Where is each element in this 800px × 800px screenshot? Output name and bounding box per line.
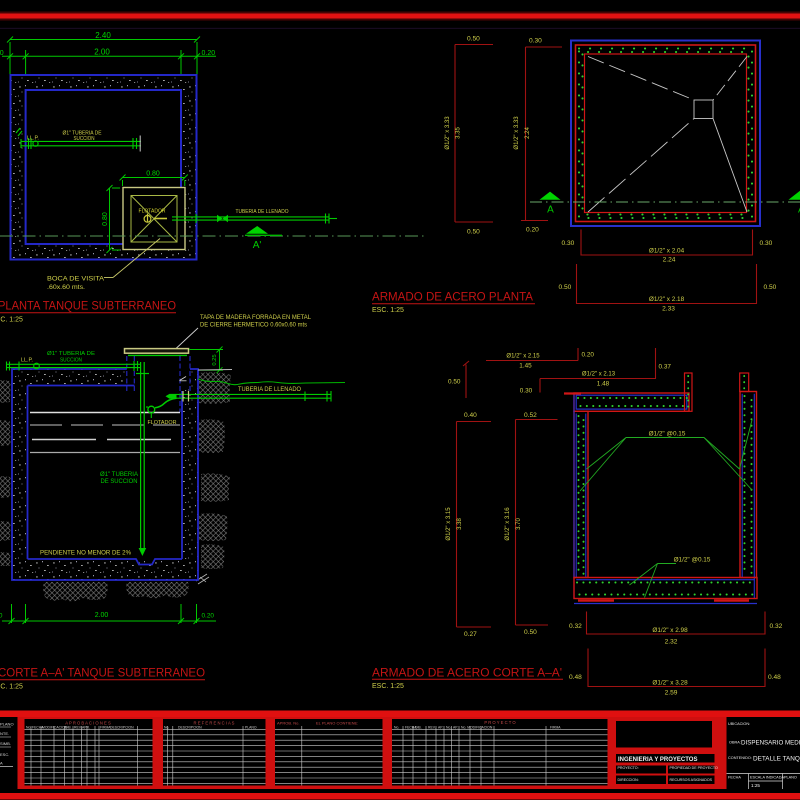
svg-text:OBRA:: OBRA: (729, 741, 741, 745)
svg-text:2.32: 2.32 (665, 639, 678, 646)
svg-text:No.: No. (26, 726, 31, 730)
svg-text:DIRECCION:: DIRECCION: (618, 778, 639, 782)
svg-text:No.: No. (394, 726, 399, 730)
svg-text:0.50: 0.50 (524, 629, 537, 636)
svg-text:TUBERIA DE LLENADO: TUBERIA DE LLENADO (238, 387, 301, 393)
svg-text:ARMADO DE ACERO CORTE A–A': ARMADO DE ACERO CORTE A–A' (372, 666, 562, 680)
svg-text:0.30: 0.30 (529, 38, 542, 45)
svg-text:REV.: REV. (74, 726, 82, 730)
svg-text:CONTENIDO:: CONTENIDO: (728, 756, 752, 760)
svg-text:Ø1/2" x 3.33: Ø1/2" x 3.33 (514, 116, 520, 150)
svg-text:0.27: 0.27 (464, 631, 477, 638)
svg-text:AP.: AP. (438, 726, 443, 730)
svg-text:AP.: AP. (453, 726, 458, 730)
svg-text:1.45: 1.45 (519, 363, 532, 370)
svg-text:0.50: 0.50 (448, 379, 461, 386)
svg-text:3.38: 3.38 (457, 518, 463, 530)
svg-text:FECHA: FECHA (728, 776, 741, 780)
svg-text:ESC. 1:25: ESC. 1:25 (372, 307, 404, 314)
svg-text:0.40: 0.40 (464, 412, 477, 419)
svg-text:0.52: 0.52 (524, 412, 537, 419)
svg-text:DIB.: DIB. (415, 726, 422, 730)
svg-text:ESC. 1:25: ESC. 1:25 (0, 317, 23, 324)
svg-text:Ø1/2" x 2.98: Ø1/2" x 2.98 (652, 627, 688, 634)
svg-text:0.20: 0.20 (0, 612, 3, 619)
svg-text:Ø1/2" x 3.33: Ø1/2" x 3.33 (445, 116, 451, 150)
svg-text:A: A (0, 761, 3, 766)
svg-text:0.20: 0.20 (526, 227, 539, 234)
svg-text:0.25: 0.25 (212, 354, 218, 365)
svg-text:NTE.: NTE. (0, 731, 9, 736)
svg-text:PLANO: PLANO (0, 722, 14, 727)
svg-text:DETALLE TANQUE: DETALLE TANQUE (753, 756, 800, 763)
svg-text:Ø1/2" x 3.28: Ø1/2" x 3.28 (652, 680, 688, 687)
svg-text:3.35: 3.35 (456, 127, 462, 139)
svg-text:0.48: 0.48 (569, 674, 582, 681)
svg-text:0.20: 0.20 (0, 50, 4, 57)
svg-text:Ø1/2" @0.15: Ø1/2" @0.15 (649, 431, 686, 438)
svg-text:No.: No. (446, 726, 451, 730)
svg-text:RECURSOS ASIGNADOS: RECURSOS ASIGNADOS (670, 778, 713, 782)
svg-text:DESCRIPCION: DESCRIPCION (110, 726, 134, 730)
svg-text:ESCALA INDICADA: ESCALA INDICADA (750, 776, 784, 780)
svg-text:APR.: APR. (82, 726, 90, 730)
svg-text:APROB. No.: APROB. No. (277, 721, 299, 726)
svg-text:Ø1" TUBERIA DE: Ø1" TUBERIA DE (47, 351, 95, 357)
svg-text:LL.P.: LL.P. (21, 358, 33, 364)
svg-text:UBICACION:: UBICACION: (728, 722, 750, 726)
svg-text:2.33: 2.33 (662, 306, 675, 313)
svg-text:DIB.: DIB. (65, 726, 72, 730)
svg-text:Ø1/2" x 2.15: Ø1/2" x 2.15 (506, 354, 540, 360)
svg-text:0.50: 0.50 (467, 229, 480, 236)
svg-text:DESCRIPCION: DESCRIPCION (178, 726, 202, 730)
svg-text:2.24: 2.24 (525, 127, 531, 139)
svg-text:0.30: 0.30 (562, 240, 575, 247)
svg-text:0.20: 0.20 (582, 352, 595, 359)
svg-text:FLOTADOR: FLOTADOR (139, 209, 166, 215)
svg-text:INGENIERIA Y PROYECTOS: INGENIERIA Y PROYECTOS (618, 757, 697, 763)
svg-text:PLANO: PLANO (784, 776, 797, 780)
svg-text:0.50: 0.50 (559, 284, 572, 291)
svg-text:BOCA DE VISITA: BOCA DE VISITA (47, 276, 105, 283)
svg-text:CORTE A–A' TANQUE SUBTERRAN: CORTE A–A' TANQUE SUBTERRANEO (0, 666, 205, 680)
svg-text:P R O Y E C T O: P R O Y E C T O (484, 720, 516, 725)
svg-text:LL.P.: LL.P. (27, 135, 39, 141)
svg-text:FIRMA: FIRMA (550, 726, 561, 730)
svg-text:SUCCION: SUCCION (60, 358, 82, 364)
svg-text:A': A' (253, 240, 262, 251)
svg-text:Ø1/2" @0.15: Ø1/2" @0.15 (674, 557, 711, 564)
svg-text:0.48: 0.48 (768, 674, 781, 681)
svg-text:Ø1/2" x 2.18: Ø1/2" x 2.18 (649, 296, 685, 303)
svg-text:DE SUCCION: DE SUCCION (101, 478, 138, 485)
svg-text:0.20: 0.20 (202, 50, 216, 57)
svg-text:2.00: 2.00 (94, 48, 110, 57)
svg-text:ESC. 1:25: ESC. 1:25 (372, 683, 404, 690)
svg-text:3.70: 3.70 (516, 518, 522, 530)
svg-text:0.50: 0.50 (467, 36, 480, 43)
svg-text:0.30: 0.30 (520, 388, 533, 395)
svg-text:FLOTADOR: FLOTADOR (148, 420, 177, 426)
svg-text:0.80: 0.80 (102, 212, 109, 226)
svg-text:ARMADO DE ACERO PLANTA: ARMADO DE ACERO PLANTA (372, 290, 533, 304)
svg-text:PLANTA TANQUE SUBTERRANEO: PLANTA TANQUE SUBTERRANEO (0, 299, 176, 313)
svg-text:PROPIEDAD DE PROYECTO: PROPIEDAD DE PROYECTO (670, 766, 718, 770)
svg-text:DISPENSARIO MEDICO: DISPENSARIO MEDICO (741, 740, 800, 747)
svg-text:TUBERIA DE LLENADO: TUBERIA DE LLENADO (236, 209, 290, 215)
svg-text:REV.: REV. (428, 726, 436, 730)
svg-text:1:25: 1:25 (751, 783, 760, 788)
svg-text:SUCCION: SUCCION (74, 136, 95, 142)
svg-text:0.20: 0.20 (202, 612, 215, 619)
svg-text:Ø1/2" x 2.04: Ø1/2" x 2.04 (649, 248, 685, 255)
svg-text:No. MODIFICACION: No. MODIFICACION (461, 726, 493, 730)
svg-text:0.32: 0.32 (770, 623, 783, 630)
svg-text:PROYECTO:: PROYECTO: (618, 766, 639, 770)
svg-text:Ø1/2" x 3.15: Ø1/2" x 3.15 (446, 507, 452, 541)
svg-text:PENDIENTE NO MENOR DE 2%: PENDIENTE NO MENOR DE 2% (40, 550, 131, 557)
svg-text:1.48: 1.48 (597, 381, 610, 388)
svg-text:SIMB.: SIMB. (0, 741, 11, 746)
svg-text:0.32: 0.32 (569, 623, 582, 630)
svg-text:0.50: 0.50 (764, 284, 777, 291)
svg-text:ESC.: ESC. (0, 752, 9, 757)
svg-text:2.00: 2.00 (95, 612, 109, 619)
svg-text:0.30: 0.30 (760, 240, 773, 247)
svg-text:No.: No. (164, 726, 169, 730)
svg-text:MODIFICACION: MODIFICACION (42, 726, 68, 730)
svg-text:TAPA DE MADERA FORRADA EN: TAPA DE MADERA FORRADA EN METAL (200, 315, 312, 321)
svg-text:PLANO: PLANO (245, 726, 257, 730)
svg-text:Ø1/2" x 3.16: Ø1/2" x 3.16 (505, 507, 511, 541)
svg-text:2.40: 2.40 (95, 31, 111, 40)
svg-text:DE CIERRE HERMETICO 0.60x0.: DE CIERRE HERMETICO 0.60x0.60 mts (200, 323, 307, 329)
svg-text:0.37: 0.37 (659, 364, 672, 371)
svg-text:.60x.60 mts.: .60x.60 mts. (47, 284, 85, 291)
svg-text:Ø1" TUBERIA: Ø1" TUBERIA (100, 471, 139, 478)
svg-text:EL PLANO CONTIENE:: EL PLANO CONTIENE: (316, 721, 358, 726)
svg-text:2.24: 2.24 (663, 257, 676, 264)
svg-text:2.59: 2.59 (665, 690, 678, 697)
svg-text:0.80: 0.80 (146, 171, 160, 178)
svg-text:A: A (547, 205, 554, 216)
svg-text:ESC. 1:25: ESC. 1:25 (0, 684, 23, 691)
svg-text:Ø1/2" x 2.13: Ø1/2" x 2.13 (582, 372, 616, 378)
